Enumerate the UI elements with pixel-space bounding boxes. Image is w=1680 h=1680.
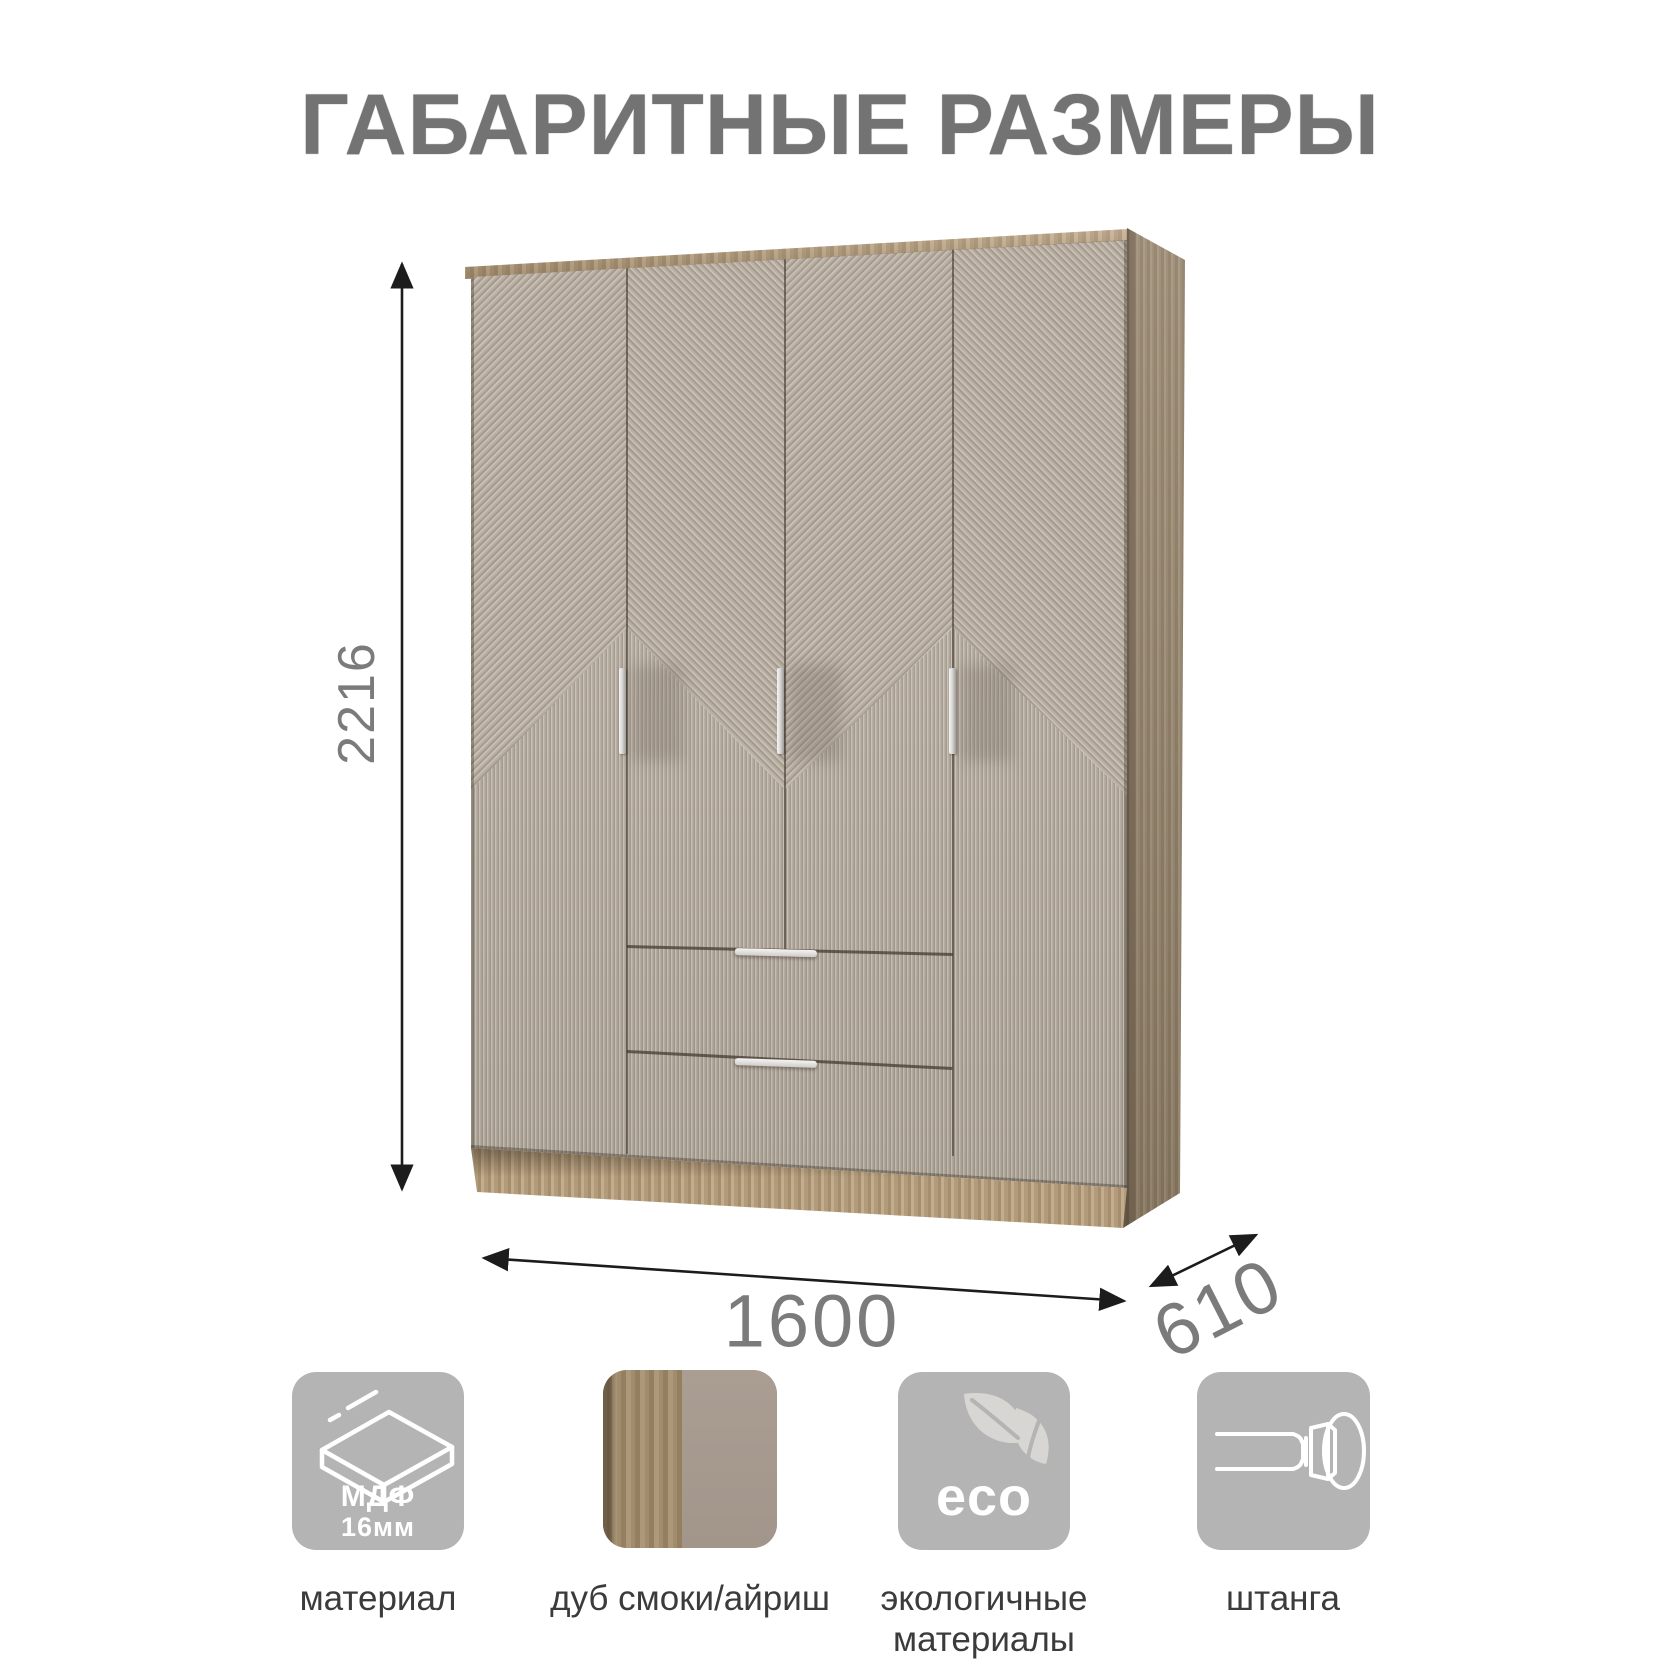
hanging-rod-icon [1197, 1372, 1370, 1550]
feature-tile-material: МДФ 16мм [292, 1372, 464, 1550]
page-title: ГАБАРИТНЫЕ РАЗМЕРЫ [0, 76, 1680, 175]
handle-shadow [961, 665, 1013, 761]
feature-tile-eco: eco [898, 1372, 1070, 1550]
feature-tile-color-swatch [603, 1370, 777, 1548]
width-dimension-label: 1600 [724, 1279, 901, 1364]
wardrobe-side-panel [1122, 224, 1188, 1232]
eco-text: eco [898, 1466, 1070, 1528]
front-right-edge-shadow [1124, 229, 1127, 1191]
taupe-swatch [682, 1370, 777, 1548]
mdf-text: МДФ [292, 1480, 464, 1514]
wardrobe-front [471, 229, 1127, 1191]
door-handle-right [949, 668, 956, 754]
oak-wood-swatch [603, 1370, 682, 1548]
feature-tile-rod [1197, 1372, 1370, 1550]
mdf-thickness-text: 16мм [292, 1512, 464, 1543]
feature-label-color: дуб смоки/айриш [520, 1578, 860, 1619]
product-dimensions-infographic: ГАБАРИТНЫЕ РАЗМЕРЫ [0, 0, 1680, 1680]
door-handle-left [619, 668, 626, 754]
door-handle-center [777, 668, 784, 754]
feature-label-rod: штанга [1113, 1578, 1453, 1619]
handle-shadow [631, 665, 683, 761]
feature-label-material: материал [208, 1578, 548, 1619]
height-dimension-label: 2216 [327, 641, 387, 765]
feature-label-eco-line1: экологичные [814, 1578, 1154, 1619]
handle-shadow [789, 665, 841, 761]
feature-label-eco-line2: материалы [814, 1619, 1154, 1660]
door-gap-1 [626, 254, 628, 1154]
door-gap-2 [784, 247, 786, 949]
depth-dimension-label: 610 [1140, 1240, 1297, 1376]
front-left-edge-shadow [471, 229, 474, 1191]
feature-label-eco: экологичные материалы [814, 1578, 1154, 1660]
